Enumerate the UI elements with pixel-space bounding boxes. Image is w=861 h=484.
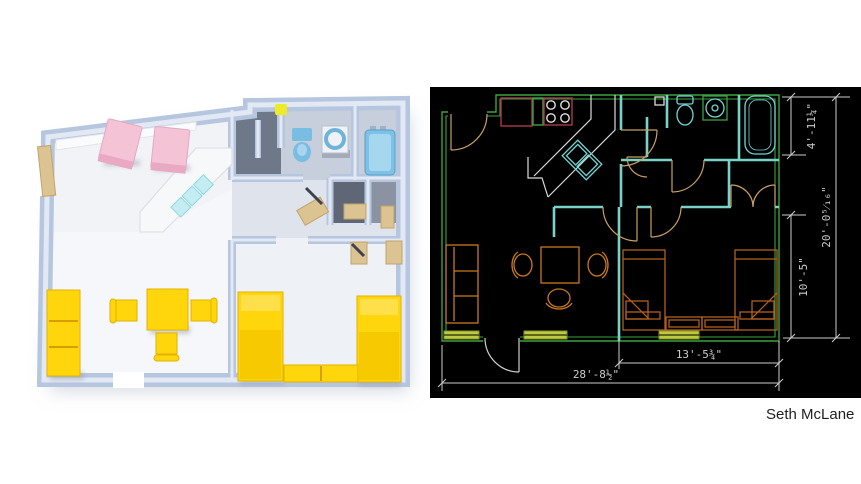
dining-chair-left xyxy=(110,299,137,323)
bookshelf-sofa xyxy=(47,290,80,376)
light-dot xyxy=(275,104,287,115)
closet-door-right xyxy=(386,241,402,264)
front-door-gap xyxy=(483,334,520,343)
bed-left-3d xyxy=(238,292,283,381)
dim-overall-depth: 20'-0⁵⁄₁₆" xyxy=(820,186,833,247)
dining-chair-right xyxy=(191,298,217,323)
dining-chair-bottom xyxy=(154,333,179,361)
pink-chair-2 xyxy=(150,126,189,173)
cad-background xyxy=(430,87,861,398)
bathtub-3d xyxy=(365,126,395,175)
dim-overall-width: 28'-8½" xyxy=(573,368,619,381)
dresser-3d xyxy=(284,365,358,382)
slide: 4'-11¼" 10'-5" 20'-0⁵⁄₁₆" 13'-5¾" 28'-8½… xyxy=(0,0,861,484)
washer-3d xyxy=(322,126,350,158)
dim-bath-width: 4'-11¼" xyxy=(805,103,818,149)
front-door-opening xyxy=(113,372,144,388)
author-credit: Seth McLane xyxy=(766,406,854,423)
closet-shelf-2 xyxy=(381,206,394,228)
dining-table xyxy=(147,289,188,330)
entry-gap xyxy=(448,109,487,118)
floor-plan-cad-drawing: 4'-11¼" 10'-5" 20'-0⁵⁄₁₆" 13'-5¾" 28'-8½… xyxy=(430,87,861,398)
closet-shelf-1 xyxy=(344,204,366,219)
bed-right-3d xyxy=(357,296,401,382)
floor-plan-3d-render xyxy=(0,0,431,484)
dim-bedroom-depth: 10'-5" xyxy=(797,257,810,297)
dim-bedroom-width: 13'-5¾" xyxy=(676,348,722,361)
